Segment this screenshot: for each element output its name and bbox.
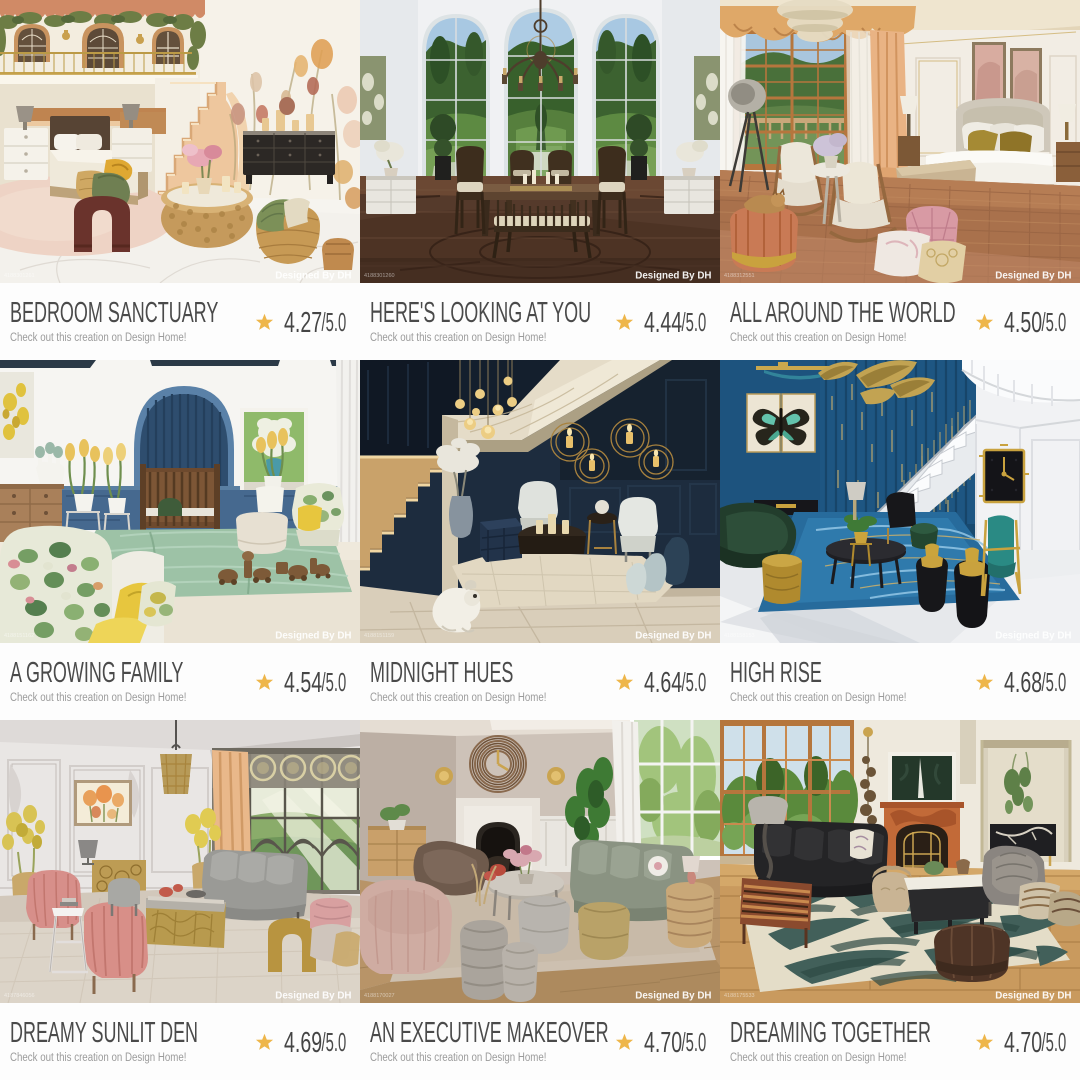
svg-text:BEDROOM SANCTUARY: BEDROOM SANCTUARY xyxy=(10,297,218,329)
svg-text:Designed By DH: Designed By DH xyxy=(995,631,1071,642)
svg-text:4.50: 4.50 xyxy=(1004,307,1042,339)
svg-text:/5.0: /5.0 xyxy=(682,669,707,697)
svg-text:HERE'S LOOKING AT YOU: HERE'S LOOKING AT YOU xyxy=(370,297,591,329)
svg-text:4188175533: 4188175533 xyxy=(724,993,755,999)
svg-text:DREAMY SUNLIT DEN: DREAMY SUNLIT DEN xyxy=(10,1017,198,1049)
svg-text:DREAMING TOGETHER: DREAMING TOGETHER xyxy=(730,1017,931,1049)
svg-text:Check out this creation on Des: Check out this creation on Design Home! xyxy=(730,691,906,704)
svg-text:4188301260: 4188301260 xyxy=(364,273,395,279)
svg-text:Designed By DH: Designed By DH xyxy=(275,991,351,1002)
svg-text:4.27: 4.27 xyxy=(284,307,322,339)
svg-text:4188151162: 4188151162 xyxy=(4,633,34,639)
svg-text:/5.0: /5.0 xyxy=(682,1029,707,1057)
svg-text:/5.0: /5.0 xyxy=(1042,669,1067,697)
svg-text:4188151159: 4188151159 xyxy=(364,633,394,639)
svg-text:AN EXECUTIVE MAKEOVER: AN EXECUTIVE MAKEOVER xyxy=(370,1017,609,1049)
svg-text:/5.0: /5.0 xyxy=(1042,309,1067,337)
svg-text:Check out this creation on Des: Check out this creation on Design Home! xyxy=(730,1051,906,1064)
svg-text:4188158153: 4188158153 xyxy=(724,633,755,639)
svg-text:4.54: 4.54 xyxy=(284,667,322,699)
svg-text:4.70: 4.70 xyxy=(644,1027,682,1059)
svg-text:4.70: 4.70 xyxy=(1004,1027,1042,1059)
svg-text:4187846056: 4187846056 xyxy=(4,993,35,999)
svg-text:/5.0: /5.0 xyxy=(322,669,347,697)
svg-text:Designed By DH: Designed By DH xyxy=(275,631,351,642)
svg-text:Check out this creation on Des: Check out this creation on Design Home! xyxy=(10,1051,186,1064)
svg-text:Check out this creation on Des: Check out this creation on Design Home! xyxy=(370,691,546,704)
svg-text:/5.0: /5.0 xyxy=(322,1029,347,1057)
svg-text:4.69: 4.69 xyxy=(284,1027,322,1059)
svg-text:4188170027: 4188170027 xyxy=(364,993,395,999)
svg-text:MIDNIGHT HUES: MIDNIGHT HUES xyxy=(370,657,513,689)
svg-text:4188312551: 4188312551 xyxy=(724,273,755,279)
svg-text:Check out this creation on Des: Check out this creation on Design Home! xyxy=(370,1051,546,1064)
svg-text:/5.0: /5.0 xyxy=(1042,1029,1067,1057)
svg-text:HIGH RISE: HIGH RISE xyxy=(730,657,822,689)
svg-text:4.44: 4.44 xyxy=(644,307,682,339)
svg-text:Designed By DH: Designed By DH xyxy=(995,991,1071,1002)
svg-text:/5.0: /5.0 xyxy=(322,309,347,337)
svg-text:Check out this creation on Des: Check out this creation on Design Home! xyxy=(370,331,546,344)
svg-text:4.68: 4.68 xyxy=(1004,667,1042,699)
svg-text:Designed By DH: Designed By DH xyxy=(635,991,711,1002)
svg-text:/5.0: /5.0 xyxy=(682,309,707,337)
svg-text:A GROWING FAMILY: A GROWING FAMILY xyxy=(10,657,183,689)
svg-text:Designed By DH: Designed By DH xyxy=(635,271,711,282)
svg-text:Check out this creation on Des: Check out this creation on Design Home! xyxy=(10,691,186,704)
svg-text:Check out this creation on Des: Check out this creation on Design Home! xyxy=(10,331,186,344)
svg-text:Designed By DH: Designed By DH xyxy=(995,271,1071,282)
svg-text:ALL AROUND THE WORLD: ALL AROUND THE WORLD xyxy=(730,297,956,329)
svg-text:Designed By DH: Designed By DH xyxy=(635,631,711,642)
svg-text:Designed By DH: Designed By DH xyxy=(275,271,351,282)
svg-text:4.64: 4.64 xyxy=(644,667,682,699)
svg-text:Check out this creation on Des: Check out this creation on Design Home! xyxy=(730,331,906,344)
svg-text:4188301261: 4188301261 xyxy=(4,273,35,279)
